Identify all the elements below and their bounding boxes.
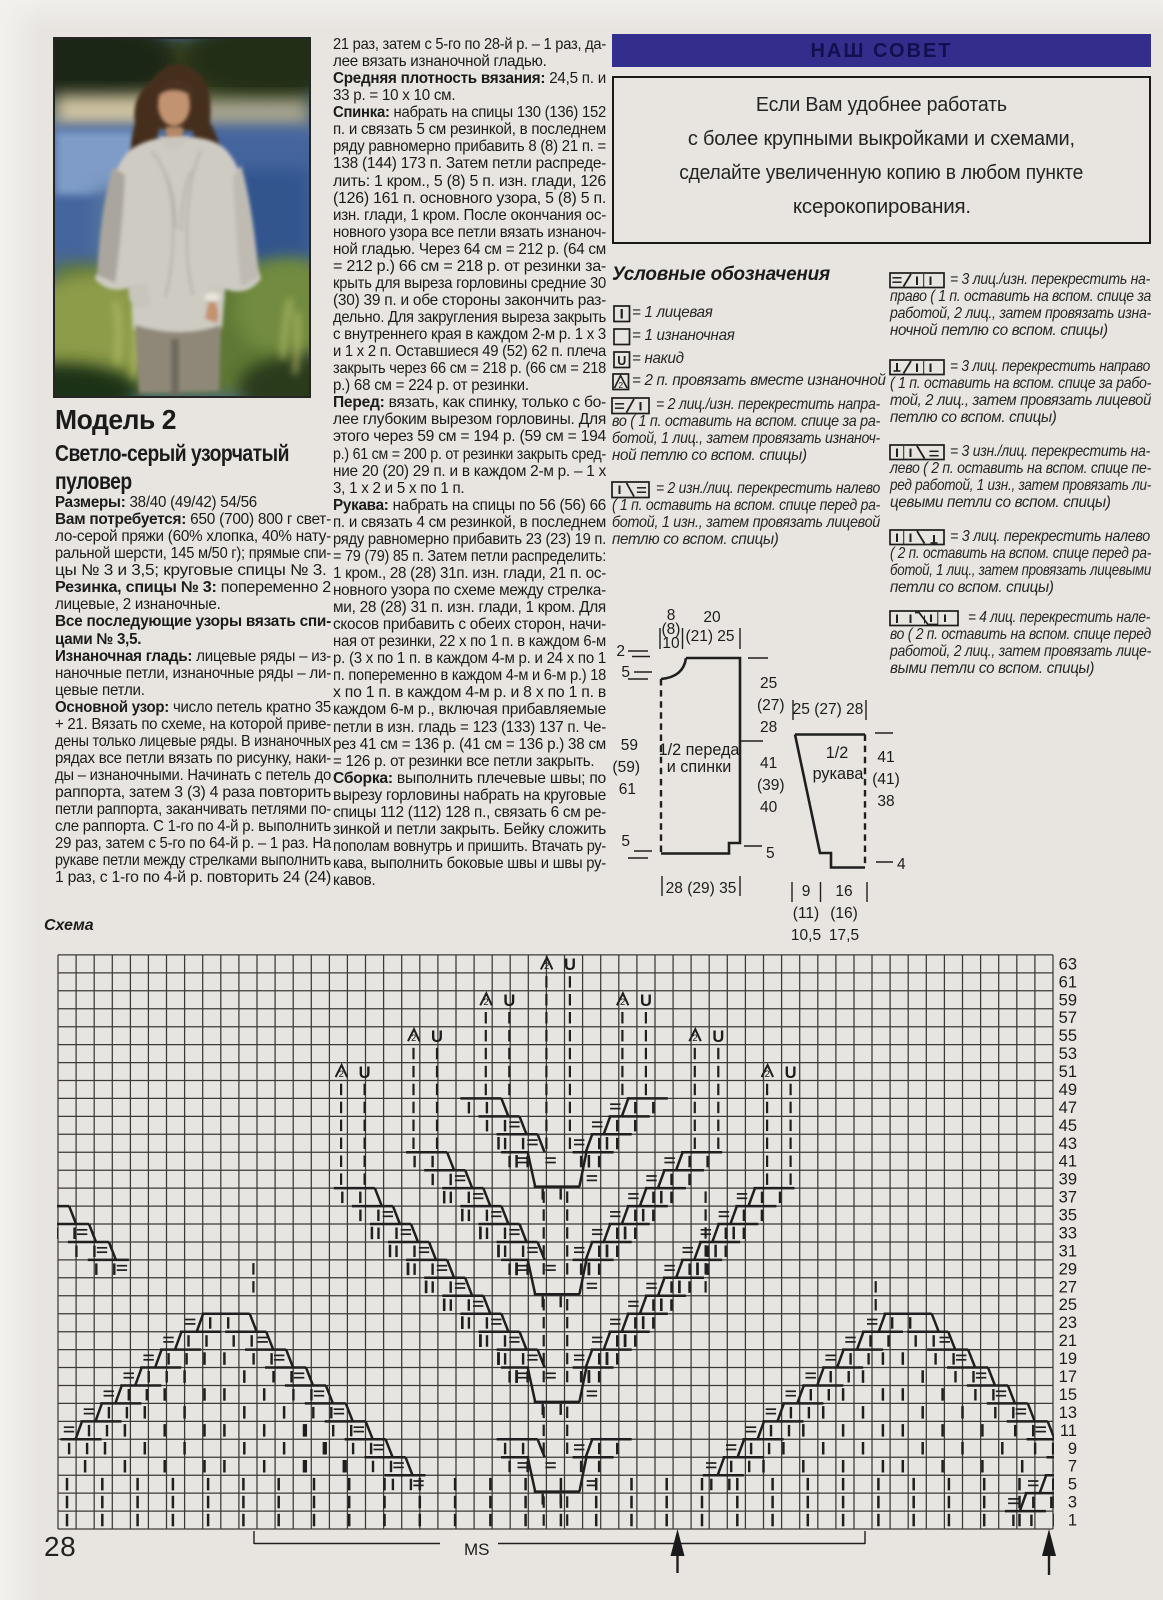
svg-text:3: 3: [1068, 1494, 1077, 1512]
svg-text:41: 41: [760, 755, 777, 772]
svg-text:1/2 переда: 1/2 переда: [659, 741, 740, 759]
svg-text:33: 33: [1059, 1225, 1077, 1243]
svg-text:MS: MS: [464, 1540, 490, 1559]
svg-text:(16): (16): [830, 905, 858, 922]
svg-text:2: 2: [616, 643, 625, 660]
svg-text:25 (27) 28: 25 (27) 28: [793, 701, 864, 718]
svg-text:U: U: [712, 1028, 724, 1046]
svg-text:(11): (11): [793, 905, 819, 922]
svg-text:41: 41: [877, 749, 894, 766]
svg-text:1/2: 1/2: [826, 744, 849, 762]
svg-text:U: U: [359, 1064, 371, 1082]
svg-text:(27): (27): [757, 697, 785, 714]
svg-text:21: 21: [1059, 1332, 1077, 1350]
svg-text:4: 4: [897, 856, 906, 873]
svg-text:2: 2: [765, 1069, 770, 1080]
svg-text:5: 5: [1068, 1476, 1077, 1494]
svg-text:43: 43: [1059, 1135, 1077, 1153]
svg-text:U: U: [564, 956, 576, 974]
svg-text:41: 41: [1059, 1153, 1077, 1171]
svg-text:57: 57: [1059, 1009, 1077, 1027]
svg-text:U: U: [503, 992, 515, 1010]
svg-text:2: 2: [339, 1069, 344, 1080]
svg-text:35: 35: [1059, 1207, 1077, 1225]
svg-text:25: 25: [760, 675, 777, 692]
svg-text:63: 63: [1059, 955, 1077, 973]
svg-text:U: U: [431, 1028, 443, 1046]
svg-text:37: 37: [1059, 1189, 1077, 1207]
svg-text:рукава: рукава: [813, 765, 864, 783]
svg-text:10,5: 10,5: [791, 927, 821, 944]
svg-text:59: 59: [621, 737, 638, 754]
svg-text:2: 2: [411, 1033, 416, 1044]
svg-text:45: 45: [1059, 1117, 1077, 1135]
svg-text:10: 10: [662, 635, 680, 652]
svg-text:2: 2: [620, 997, 625, 1008]
svg-text:38: 38: [877, 793, 894, 810]
svg-text:(39): (39): [757, 777, 785, 794]
svg-text:31: 31: [1059, 1242, 1077, 1260]
svg-text:9: 9: [1068, 1440, 1077, 1458]
svg-text:51: 51: [1059, 1063, 1077, 1081]
svg-text:7: 7: [1068, 1458, 1077, 1476]
svg-text:19: 19: [1059, 1350, 1077, 1368]
svg-text:(41): (41): [872, 771, 900, 788]
svg-text:53: 53: [1059, 1045, 1077, 1063]
svg-text:28: 28: [760, 719, 777, 736]
svg-text:и спинки: и спинки: [667, 758, 732, 776]
svg-text:25: 25: [1059, 1296, 1077, 1314]
svg-text:27: 27: [1059, 1278, 1077, 1296]
svg-text:17: 17: [1059, 1368, 1077, 1386]
svg-text:5: 5: [766, 845, 775, 862]
svg-text:59: 59: [1059, 991, 1077, 1009]
svg-text:28 (29) 35: 28 (29) 35: [666, 880, 737, 897]
svg-text:55: 55: [1059, 1027, 1077, 1045]
svg-text:U: U: [617, 354, 626, 368]
svg-text:13: 13: [1059, 1404, 1077, 1422]
svg-text:39: 39: [1059, 1171, 1077, 1189]
svg-text:(21) 25: (21) 25: [685, 628, 734, 645]
svg-text:15: 15: [1059, 1386, 1077, 1404]
svg-text:1: 1: [1068, 1512, 1077, 1530]
svg-text:17,5: 17,5: [829, 927, 859, 944]
svg-text:2: 2: [483, 997, 488, 1008]
svg-text:61: 61: [619, 781, 636, 798]
svg-text:U: U: [640, 992, 652, 1010]
svg-text:16: 16: [835, 883, 852, 900]
svg-text:9: 9: [802, 883, 811, 900]
svg-text:5: 5: [621, 833, 630, 850]
svg-text:40: 40: [760, 799, 778, 816]
svg-text:2: 2: [692, 1033, 697, 1044]
svg-text:(59): (59): [612, 759, 640, 776]
svg-text:23: 23: [1059, 1314, 1077, 1332]
svg-text:61: 61: [1059, 973, 1077, 991]
svg-text:U: U: [785, 1064, 797, 1082]
svg-text:49: 49: [1059, 1081, 1077, 1099]
svg-text:20: 20: [703, 609, 721, 626]
svg-text:29: 29: [1059, 1260, 1077, 1278]
svg-text:11: 11: [1060, 1422, 1077, 1440]
svg-text:2: 2: [544, 961, 549, 972]
svg-text:47: 47: [1059, 1099, 1077, 1117]
svg-text:2: 2: [618, 380, 623, 390]
